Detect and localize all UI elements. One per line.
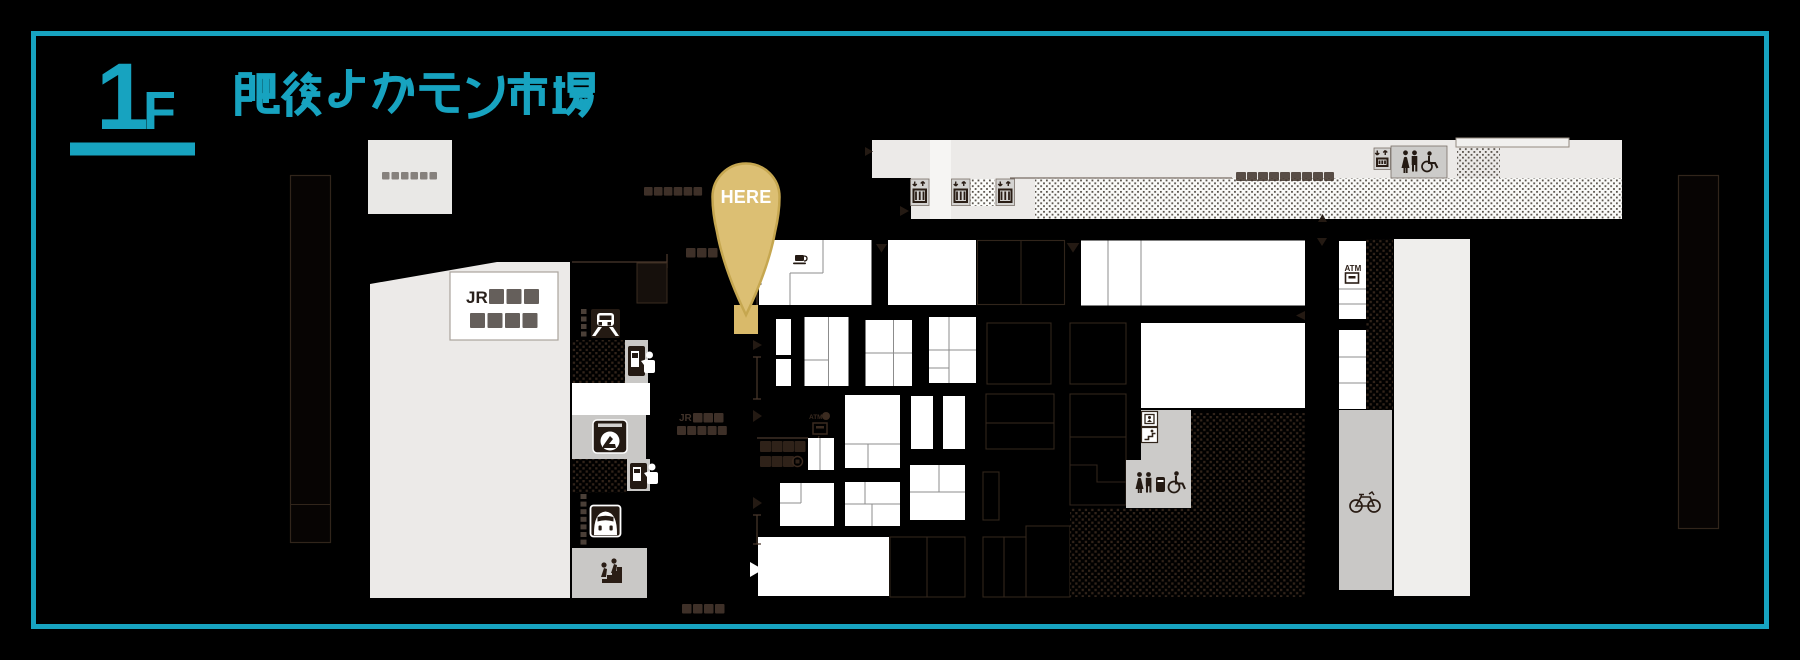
svg-text:JR: JR [466,288,488,307]
svg-text:1: 1 [96,44,149,150]
svg-text:ATM: ATM [809,414,823,421]
svg-text:ATM: ATM [1345,264,1362,273]
svg-text:JR: JR [679,413,693,424]
svg-text:F: F [143,81,176,141]
svg-text:HERE: HERE [721,187,772,207]
